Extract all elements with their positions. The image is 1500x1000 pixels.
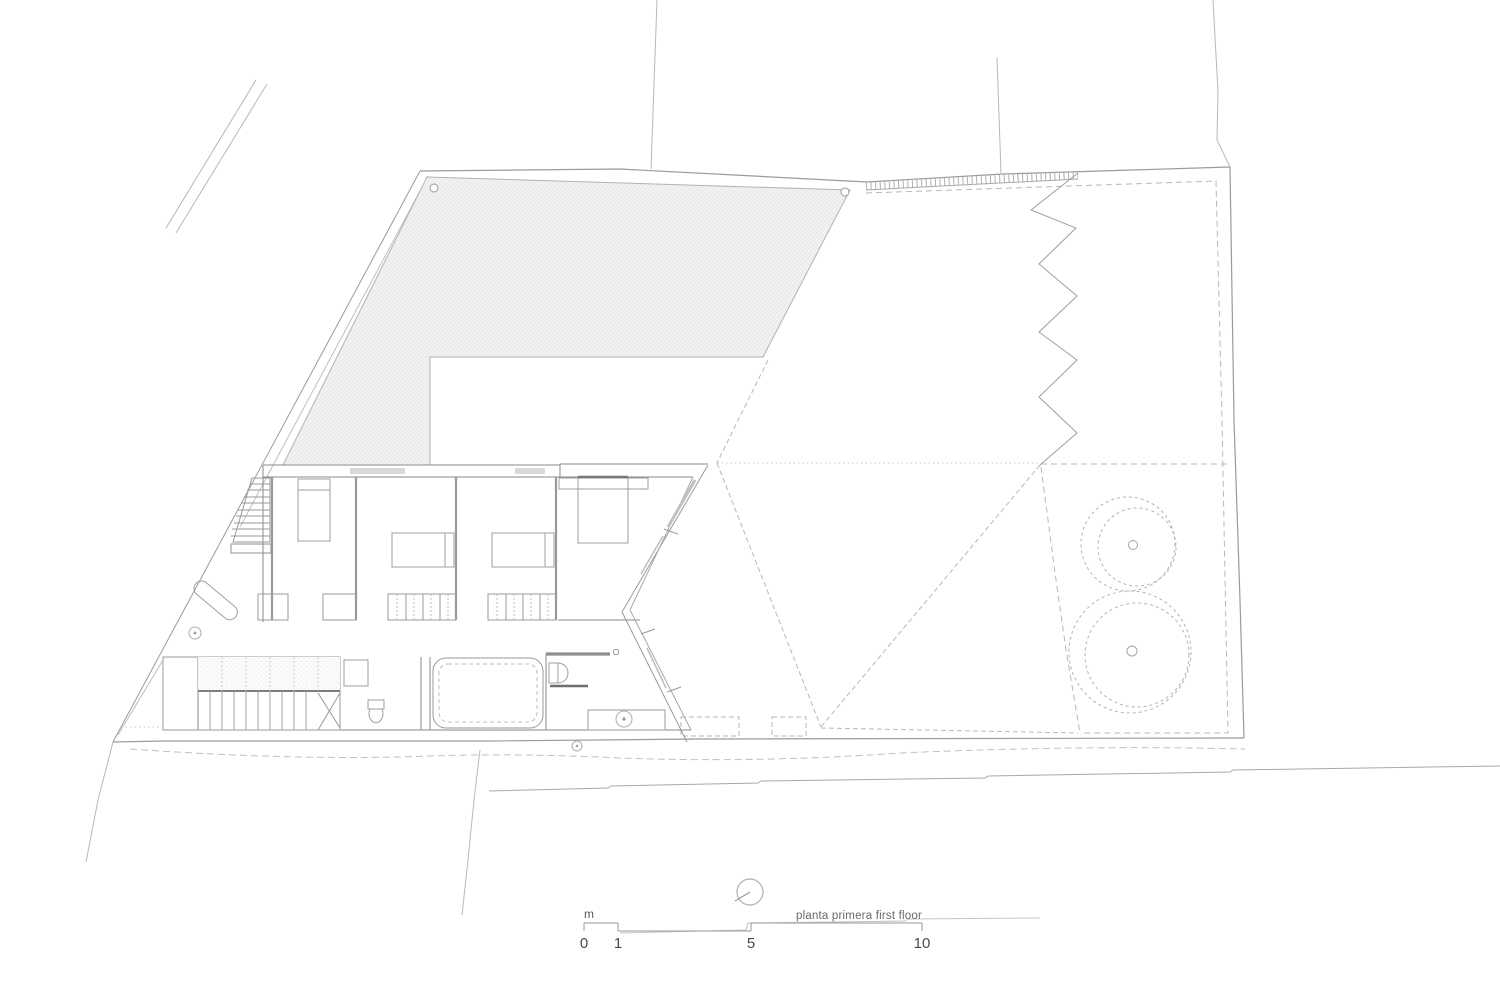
zigzag-wall [1031, 173, 1078, 465]
tree-canopy [1069, 591, 1191, 713]
roof-drain-icon [841, 188, 849, 196]
terrace-diagonal [118, 660, 163, 735]
slope-dashed-line [717, 360, 768, 463]
bench [191, 578, 240, 623]
exterior-stair [231, 478, 271, 553]
bed [298, 479, 330, 541]
terrain-contour-dashed [130, 748, 1245, 760]
planters [681, 717, 806, 736]
site-boundary-north [420, 167, 1230, 182]
north-arrow [735, 879, 763, 905]
shower-enclosure-dashed [439, 664, 537, 722]
bed-headboard-shelf [559, 478, 648, 489]
toilet [549, 663, 568, 683]
east-glass-wall [622, 465, 708, 742]
scale-bar-line [584, 923, 922, 931]
scale-bar: m 0 1 5 10 planta primera first floor [580, 907, 931, 952]
scale-tick-5: 5 [747, 935, 755, 952]
wardrobe [388, 594, 456, 620]
stair-landing [231, 544, 271, 553]
closets [258, 594, 556, 620]
scale-tick-1: 1 [614, 935, 622, 952]
shower-room [433, 658, 543, 728]
north-retaining-wall [866, 175, 1078, 190]
site-boundary-south [113, 738, 1244, 742]
tree-small [1081, 497, 1176, 591]
roof-terrace-hatch [283, 177, 850, 465]
stair-treads [210, 691, 306, 730]
slope-dashed-line [717, 463, 821, 727]
setback-dashed-boundary [866, 181, 1228, 733]
west-terrace [118, 478, 271, 735]
trees [1069, 497, 1191, 713]
tree-canopy [1085, 603, 1189, 707]
scale-tick-10: 10 [914, 935, 931, 952]
site-boundary-east [1230, 167, 1244, 738]
window-sill [515, 468, 545, 474]
plot-division-line [651, 0, 657, 169]
closet [323, 594, 356, 620]
planter-box [772, 717, 806, 736]
window-sill [350, 468, 405, 474]
road-edge-line [176, 84, 267, 233]
scale-tick-0: 0 [580, 935, 588, 952]
beds [298, 477, 648, 567]
plot-division-line [1213, 0, 1230, 167]
mullion-tick [641, 629, 655, 634]
floor-plan-drawing: m 0 1 5 10 planta primera first floor [0, 0, 1500, 1000]
faucet-icon [613, 649, 618, 654]
tree-trunk [1129, 541, 1138, 550]
glazing [641, 536, 663, 574]
floor-plan-sheet: m 0 1 5 10 planta primera first floor [0, 0, 1500, 1000]
boundary-continuation-line [86, 742, 113, 862]
tree-canopy [1081, 497, 1175, 591]
toilet [368, 700, 384, 723]
scale-unit-label: m [584, 907, 594, 921]
plan-title: planta primera first floor [796, 910, 922, 922]
courtyard-edge-dashed [821, 728, 1078, 733]
roof-drain-icon [430, 184, 438, 192]
sink [344, 660, 368, 686]
road-kerb-line [462, 750, 480, 915]
tree-large [1069, 591, 1191, 713]
road-edge-line [166, 80, 256, 228]
tree-trunk [1127, 646, 1137, 656]
bed [578, 478, 628, 543]
roof-terrace [283, 177, 850, 465]
glazing [668, 480, 695, 527]
main-stair [163, 657, 340, 730]
slope-dashed-line [821, 465, 1040, 727]
building [118, 464, 708, 751]
street-contour-line [489, 766, 1500, 791]
wardrobe [488, 594, 556, 620]
plot-division-line [997, 58, 1001, 173]
context-lines [86, 0, 1500, 933]
courtyard-lines [717, 360, 1078, 733]
